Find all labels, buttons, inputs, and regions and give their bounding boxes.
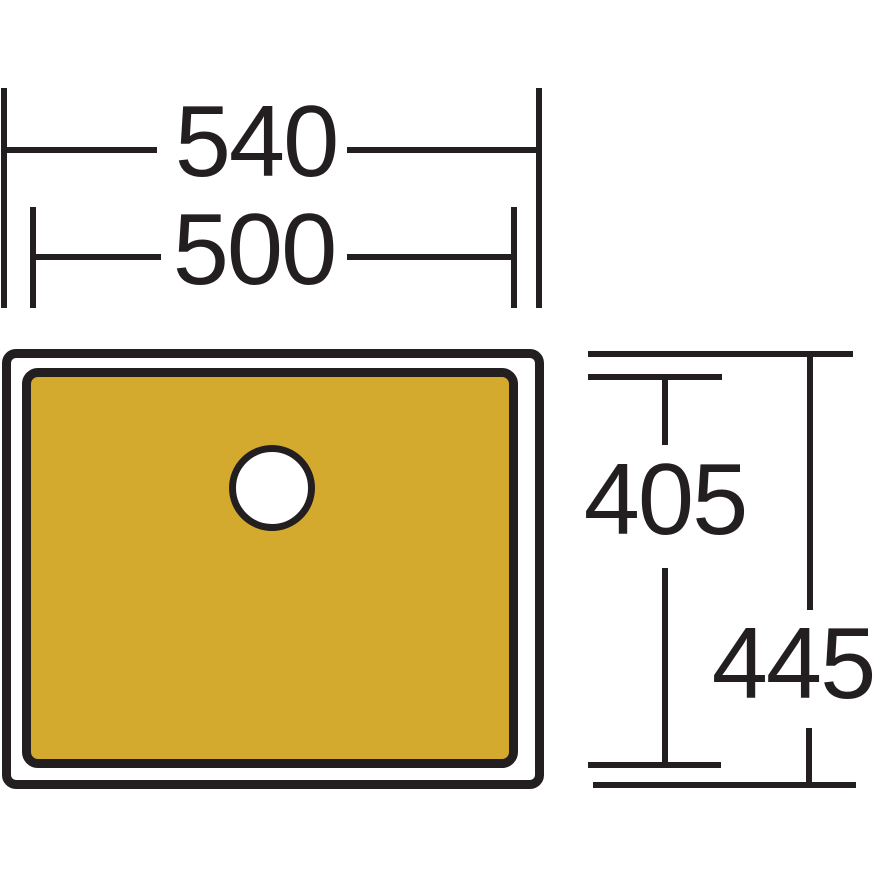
outer-width-dimension-line-left [1,147,157,153]
dimension-diagram: 540 500 405 445 [0,0,880,880]
inner-width-label: 500 [158,200,350,301]
drain-hole-icon [229,445,315,531]
inner-top-reference-line [588,374,722,380]
outer-bottom-reference-line [593,782,856,788]
outer-width-dimension-line-right [347,147,541,153]
outer-width-tick-right [536,88,542,308]
sink-bowl [22,368,518,768]
inner-bottom-reference-line [588,762,721,768]
outer-height-dimension-line-bottom [806,728,812,784]
outer-height-dimension-line-top [807,357,813,610]
outer-height-label: 445 [707,614,879,715]
inner-width-dimension-line-left [30,254,161,260]
inner-height-label: 405 [579,450,751,551]
outer-width-label: 540 [160,92,352,193]
outer-top-reference-line [588,351,853,357]
inner-height-dimension-line-bottom [662,568,668,764]
outer-width-tick-left [1,88,7,308]
inner-width-dimension-line-right [347,254,517,260]
inner-height-dimension-line-top [662,380,668,445]
